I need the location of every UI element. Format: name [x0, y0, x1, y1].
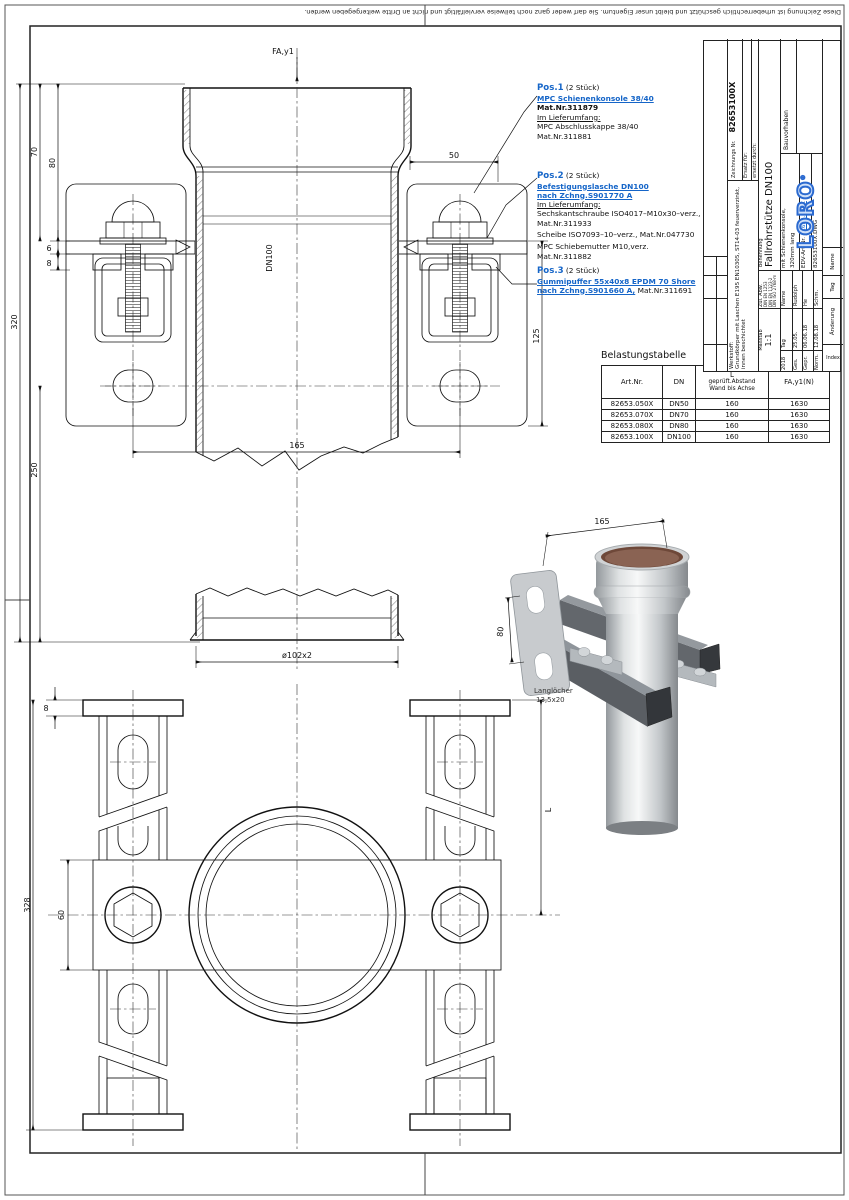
svg-text:70: 70 — [30, 147, 39, 157]
signature-grid: 2018 Tag Name Ges. 25.05. Rudolph Gepr. … — [780, 271, 822, 371]
part-designation: Fallrohrstütze DN100 — [764, 42, 775, 267]
table-row: 82653.080XDN80 1601630 — [602, 421, 830, 432]
copyright-notice: Diese Zeichnung ist urheberrechtlich ges… — [230, 8, 841, 16]
slot-note: Langlöcher — [534, 687, 573, 695]
bracket-left — [66, 184, 195, 426]
force-label: FA,y1 — [272, 47, 294, 56]
bottom-view: 8 328 60 L — [23, 684, 560, 1150]
pos2-title: Pos.2 — [537, 171, 564, 181]
svg-text:125: 125 — [532, 328, 541, 343]
svg-text:8: 8 — [43, 704, 48, 713]
iso-view: 165 80 Langlöcher 13,5x20 — [496, 517, 720, 835]
pos1-title: Pos.1 — [537, 83, 564, 93]
designation-cell: Benennung Fallrohrstütze DN100 — [758, 39, 780, 271]
drawing-number: 82653100X — [728, 82, 737, 133]
force-arrow: FA,y1 — [272, 47, 297, 81]
pos1-link[interactable]: MPC Schienenkonsole 38/40 — [537, 94, 654, 104]
iso-wall-plate — [510, 570, 571, 697]
svg-text:6: 6 — [46, 244, 51, 253]
annotation-pos1: Pos.1 (2 Stück) MPC Schienenkonsole 38/4… — [537, 83, 722, 142]
loro-logo: LORO® — [794, 173, 818, 249]
svg-text:50: 50 — [449, 151, 459, 160]
svg-text:328: 328 — [23, 897, 32, 912]
svg-text:320: 320 — [10, 314, 19, 329]
title-block: Werkstoff: Grundkörper mit Laschen E195 … — [703, 40, 841, 372]
pipe-size-label: DN100 — [265, 244, 274, 271]
svg-text:8: 8 — [46, 259, 51, 268]
pos3-title: Pos.3 — [537, 266, 564, 276]
pos3-link[interactable]: Gummipuffer 55x40x8 EPDM 70 Shore — [537, 277, 696, 286]
werkstoff-cell: Werkstoff: Grundkörper mit Laschen E195 … — [728, 181, 758, 371]
svg-text:L: L — [544, 807, 553, 812]
svg-text:13,5x20: 13,5x20 — [536, 696, 565, 704]
scale-cell: Maßstab 1:1 — [758, 309, 780, 371]
table-row: 82653.070XDN70 1601630 — [602, 410, 830, 421]
table-row: 82653.100XDN100 1601630 — [602, 432, 830, 443]
table-row: 82653.050XDN50 1601630 — [602, 399, 830, 410]
svg-text:250: 250 — [30, 462, 39, 477]
svg-text:60: 60 — [57, 910, 66, 920]
revision-rows — [704, 39, 728, 371]
bracket-right — [398, 184, 527, 426]
tolerance-cell: Zul. Abw. DIN EN 1253 DIN EN 1123-2 DIN … — [758, 271, 780, 309]
svg-text:80: 80 — [48, 158, 57, 168]
front-view: DN100 FA,y1 — [10, 47, 548, 672]
scale-value: 1:1 — [764, 309, 773, 371]
annotation-pos2: Pos.2 (2 Stück) Befestigungslasche DN100… — [537, 171, 722, 261]
pos2-link[interactable]: Befestigungslasche DN100 — [537, 182, 649, 191]
drawing-sheet: .ol{stroke:#111;stroke-width:1.4;fill:no… — [0, 0, 849, 1200]
svg-text:80: 80 — [496, 626, 506, 637]
svg-text:165: 165 — [289, 441, 304, 450]
revision-header: Index Änderung Tag Name — [822, 39, 842, 371]
svg-text:165: 165 — [594, 517, 609, 526]
annotation-pos3: Pos.3 (2 Stück) Gummipuffer 55x40x8 EPDM… — [537, 266, 722, 295]
bauvorhaben-cell: Bauvorhaben — [781, 39, 797, 153]
drawing-number-cell: Zeichnungs Nr. 82653100X Ersatz für: ers… — [728, 39, 758, 181]
pos-leaders — [474, 96, 537, 284]
svg-text:ø102x2: ø102x2 — [282, 651, 312, 660]
